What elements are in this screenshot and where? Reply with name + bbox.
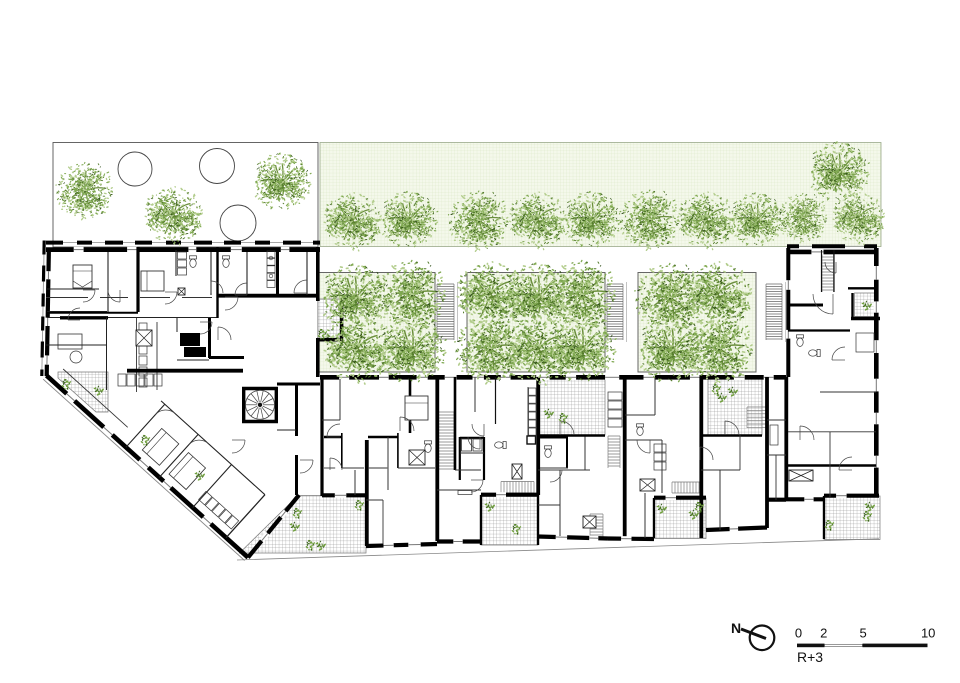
svg-text:10: 10 [921,626,935,641]
svg-text:R+3: R+3 [797,649,823,665]
svg-text:2: 2 [820,626,827,641]
svg-text:0: 0 [795,626,802,641]
svg-text:N: N [731,620,741,636]
svg-text:5: 5 [859,626,866,641]
